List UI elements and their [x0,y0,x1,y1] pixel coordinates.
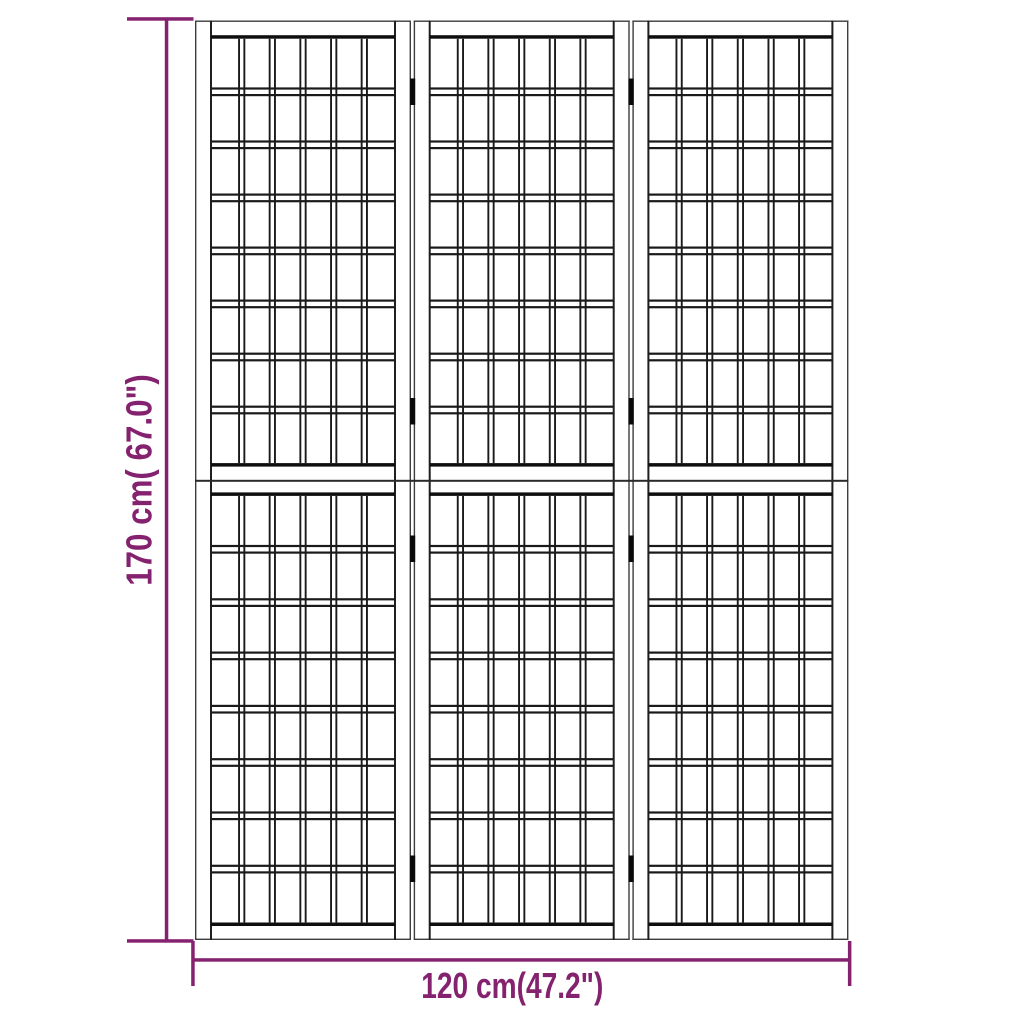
svg-text:170 cm( 67.0"): 170 cm( 67.0") [119,374,160,586]
svg-text:120 cm(47.2"): 120 cm(47.2") [421,966,603,1006]
